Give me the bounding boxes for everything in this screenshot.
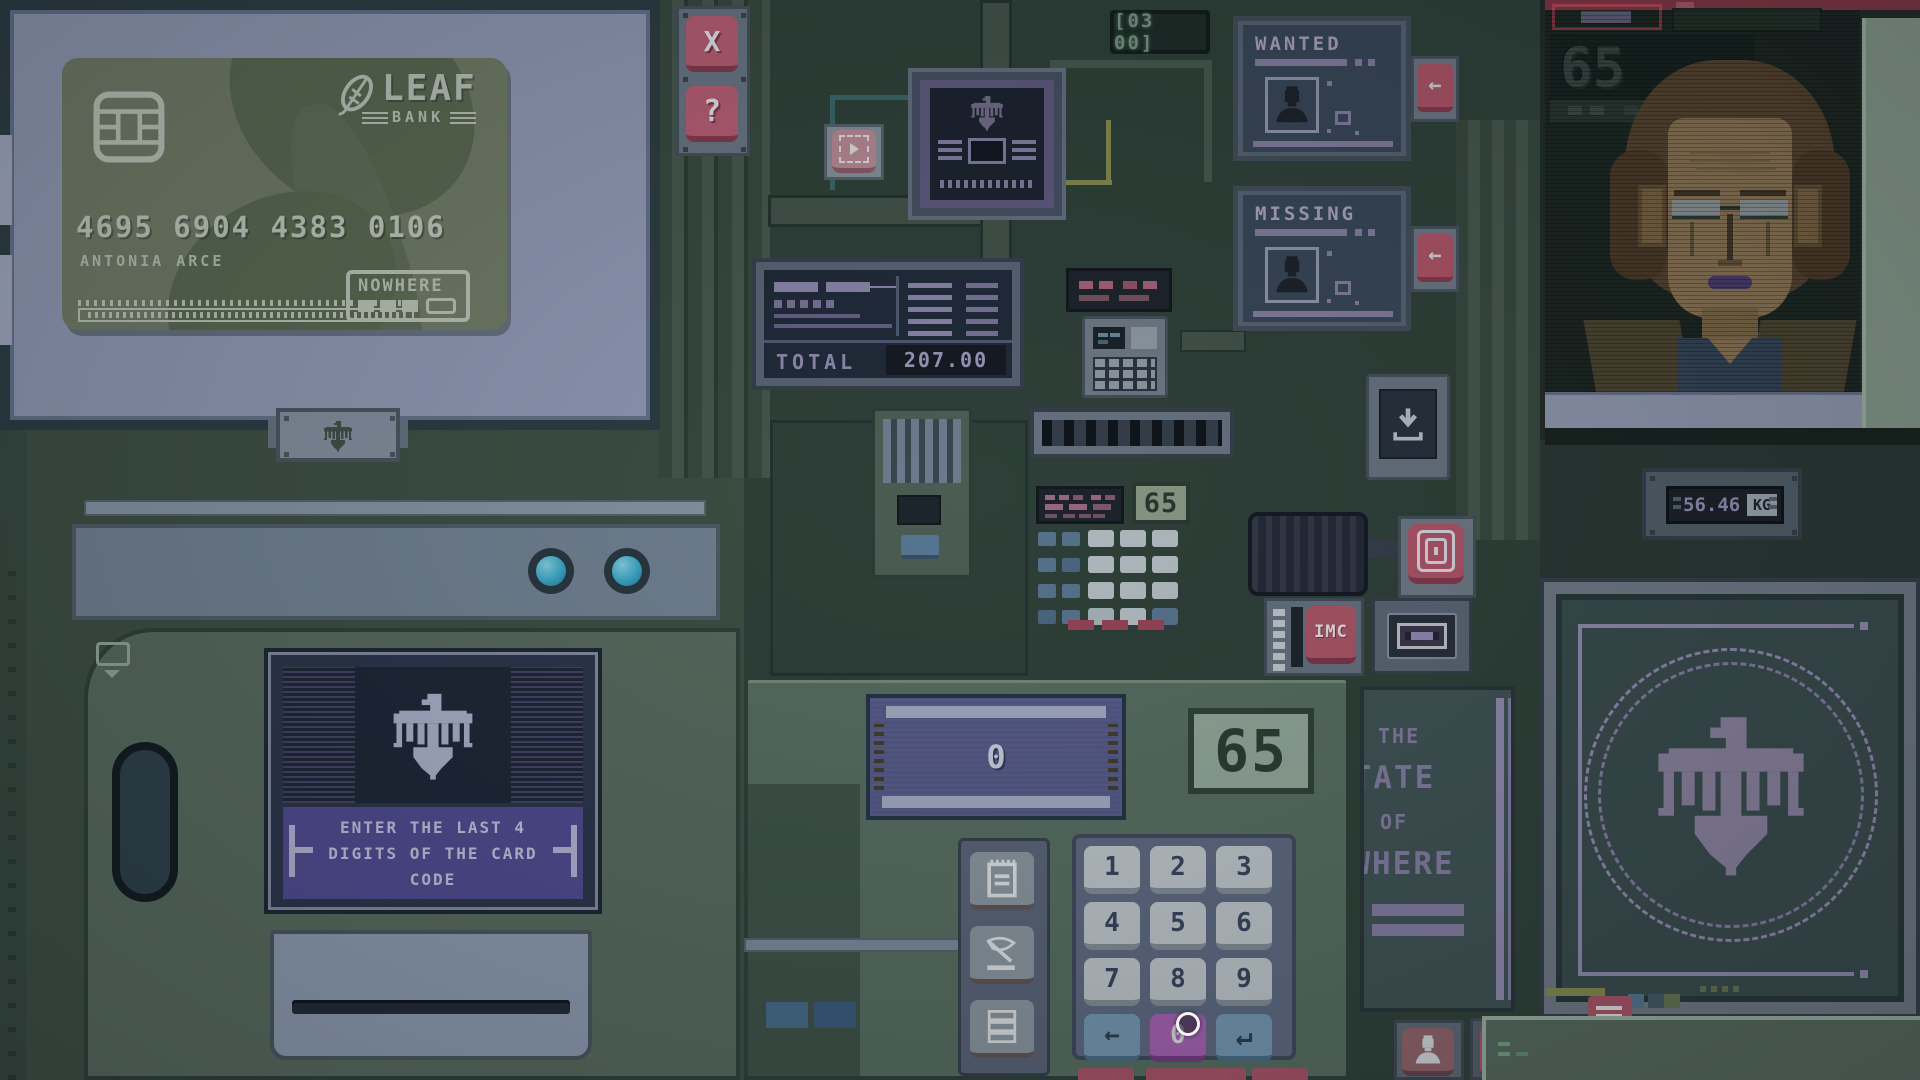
emblem-bracket-dot [1860, 622, 1868, 630]
calc-lcd-value: 65 [1144, 488, 1179, 519]
key-label: 5 [1170, 908, 1186, 938]
total-value-box: 207.00 [886, 345, 1006, 375]
cable-drum [1248, 512, 1368, 596]
key-label: 3 [1236, 852, 1252, 882]
door-column [1862, 18, 1920, 442]
pipe-decor [1456, 120, 1540, 540]
sign-line: NOWHERE [1360, 846, 1494, 882]
screw [683, 13, 688, 18]
card-region-badge: NOWHERE [346, 270, 470, 322]
key-label: 7 [1104, 964, 1120, 994]
bank-card[interactable]: LEAF BANK 4695 6904 4383 0106 ANTONIA AR… [62, 58, 507, 330]
atm-prompt-line: CODE [283, 867, 583, 893]
numpad-key-7[interactable]: 7 [1084, 958, 1140, 1006]
card-region-label: NOWHERE [358, 276, 444, 296]
dial-screen-bars [1098, 333, 1108, 337]
receipt-line-bars [774, 300, 834, 308]
amount-display-botbar [882, 796, 1110, 808]
missing-dot [1327, 299, 1331, 303]
scale-plate: 56.46 KG [1642, 468, 1802, 540]
dial-aux [1131, 327, 1157, 349]
emblem-screen [1556, 594, 1904, 1002]
certificate-mat [920, 80, 1054, 208]
certificate-lines [1012, 140, 1036, 144]
sign-button[interactable] [970, 926, 1034, 984]
status-led-glow [612, 556, 642, 586]
popup-dashes [1498, 1042, 1510, 1046]
mini-pink-bars [1596, 1006, 1622, 1010]
deposit-module [1366, 374, 1450, 480]
calc-display-bars [1045, 504, 1063, 510]
missing-photo [1265, 247, 1319, 303]
port-slot-bar [1405, 632, 1439, 640]
screen-scanline-col [283, 667, 355, 803]
deposit-screen [1379, 389, 1437, 459]
machine-top-bar [84, 500, 706, 516]
port-inner [1387, 613, 1457, 659]
help-button-label: ? [703, 94, 721, 129]
day-counter-display: [03 00] [1110, 10, 1210, 54]
eject-icon [839, 135, 869, 163]
imc-button-label: IMC [1314, 622, 1348, 642]
charge-indicator [766, 1002, 808, 1028]
monitor-side-segment [0, 135, 12, 225]
total-divider [764, 340, 1012, 343]
screw [284, 416, 289, 421]
vent-blue-key[interactable] [901, 535, 939, 559]
socket-slots [1042, 420, 1222, 446]
key-label: 2 [1170, 852, 1186, 882]
eagle-plaque [276, 408, 400, 462]
window-top-pink [1676, 2, 1694, 8]
key-label: 8 [1170, 964, 1186, 994]
wanted-prev-button[interactable]: ← [1417, 64, 1453, 112]
wanted-screen: WANTED [1243, 25, 1401, 152]
machine-handle [112, 742, 178, 902]
emblem-bracket [1578, 624, 1582, 976]
certificate-seal [968, 138, 1006, 164]
sign-line: OF [1380, 810, 1494, 834]
receipt-slot[interactable] [292, 1000, 570, 1014]
pink-key-top[interactable] [1078, 1068, 1134, 1080]
missing-poster[interactable]: MISSING [1233, 186, 1411, 331]
total-monitor: TOTAL 207.00 [752, 258, 1024, 390]
person-icon [1410, 1032, 1446, 1068]
state-eagle-icon [388, 675, 478, 797]
plaque-eagle-icon [318, 420, 358, 452]
notepad-icon [980, 857, 1024, 901]
numpad-key-2[interactable]: 2 [1150, 846, 1206, 894]
sign-line: THE [1378, 724, 1494, 748]
missing-mark [1327, 251, 1332, 256]
card-number: 4695 6904 4383 0106 [76, 210, 446, 244]
missing-silhouette-icon [1269, 252, 1315, 298]
receipt-line-bars [774, 282, 818, 292]
numpad-key-5[interactable]: 5 [1150, 902, 1206, 950]
indicator-dashes [1700, 986, 1740, 992]
bank-tag-lines [450, 112, 476, 124]
atm-prompt-line: DIGITS OF THE CARD [283, 841, 583, 867]
limit-value: 65 [1214, 717, 1288, 785]
state-sign: THE STATE OF NOWHERE [1360, 686, 1515, 1012]
status-led-glow [536, 556, 566, 586]
cell-indicator-bars [1079, 295, 1109, 301]
backspace-arrow-icon: ← [1104, 1020, 1120, 1050]
scale-weight-value: 56.46 [1683, 494, 1740, 516]
close-button-label: X [704, 25, 721, 58]
certificate-screen [930, 88, 1044, 200]
pipe-decor [1204, 60, 1212, 182]
window-sill-shadow [1545, 428, 1920, 445]
certificate-eagle-icon [964, 94, 1010, 132]
cell-indicator-bars [1079, 281, 1093, 289]
status-led [528, 548, 574, 594]
pipe-decor [1050, 60, 1212, 68]
pink-key-top[interactable] [1252, 1068, 1308, 1080]
cell-indicator-panel [1066, 268, 1172, 312]
receipt-dash-rows [966, 280, 998, 336]
total-label: TOTAL [776, 350, 856, 374]
emblem-bracket [1578, 624, 1854, 628]
card-out-icon-arrow [104, 670, 120, 678]
missing-dots [1355, 229, 1362, 236]
keypad-panel-shade [748, 784, 860, 1076]
sign-bar [1372, 904, 1464, 916]
missing-title: MISSING [1255, 203, 1356, 225]
wanted-title: WANTED [1255, 33, 1342, 55]
total-value: 207.00 [904, 348, 988, 372]
eagle-certificate-frame [908, 68, 1066, 220]
amount-value-wrap: 0 [870, 722, 1122, 792]
key-label: 1 [1104, 852, 1120, 882]
day-counter-value: [03 00] [1114, 10, 1206, 54]
numpad-backspace-key[interactable]: ← [1084, 1014, 1140, 1062]
wanted-dots [1355, 59, 1362, 66]
atm-screen-emblem-zone [283, 667, 583, 803]
wanted-stamp [1335, 111, 1351, 125]
missing-underline [1255, 229, 1347, 236]
monitor-side-segment [0, 255, 12, 345]
port-slot[interactable] [1397, 623, 1447, 649]
receipt-dash-rows [908, 280, 952, 336]
amount-value: 0 [986, 738, 1005, 776]
window-sill [1545, 392, 1862, 428]
missing-footer-bar [1253, 311, 1393, 317]
vent-grille [883, 419, 961, 483]
sign-bar [1372, 924, 1464, 936]
spiral-icon [1417, 530, 1455, 572]
machine-edge-ticks [8, 560, 16, 1080]
scale-dashes [1769, 497, 1777, 501]
mouse-cursor [1176, 1012, 1200, 1036]
amount-display-topbar [882, 706, 1110, 718]
card-stack-icon [980, 1005, 1024, 1049]
calc-display-bars [1045, 514, 1057, 518]
documents-button[interactable] [970, 1000, 1034, 1058]
side-pipe [744, 938, 960, 952]
limit-display: 65 [1188, 708, 1314, 794]
badge-block [358, 300, 374, 312]
missing-prev-button[interactable]: ← [1417, 234, 1453, 282]
game-screen: LEAF BANK 4695 6904 4383 0106 ANTONIA AR… [0, 0, 1920, 1080]
wanted-underline [1255, 59, 1347, 66]
close-button[interactable]: X [686, 16, 738, 72]
vent-screen [897, 495, 941, 525]
insert-down-icon [1386, 402, 1430, 446]
total-screen: TOTAL 207.00 [764, 270, 1012, 378]
numpad-key-4[interactable]: 4 [1084, 902, 1140, 950]
scale-display: 56.46 KG [1666, 486, 1784, 524]
receipt-line-bars [774, 314, 860, 318]
customer-button[interactable] [1402, 1028, 1454, 1076]
wanted-photo [1265, 77, 1319, 133]
wanted-mark [1327, 81, 1332, 86]
pink-key-top[interactable] [1146, 1068, 1246, 1080]
screw [1650, 476, 1655, 481]
bank-tag: BANK [392, 108, 444, 126]
eject-button[interactable] [832, 130, 876, 173]
missing-stamp [1335, 281, 1351, 295]
window-glass-tint [1545, 10, 1860, 392]
atm-screen: ENTER THE LAST 4 DIGITS OF THE CARD CODE [268, 652, 598, 910]
imc-connector-pins [1273, 609, 1285, 616]
calc-display-bars [1045, 495, 1055, 500]
numpad-key-6[interactable]: 6 [1216, 902, 1272, 950]
calc-display [1036, 486, 1124, 524]
atm-prompt: ENTER THE LAST 4 DIGITS OF THE CARD CODE [283, 815, 583, 893]
numpad-key-8[interactable]: 8 [1150, 958, 1206, 1006]
imc-button[interactable]: IMC [1306, 606, 1356, 664]
dial-module [1082, 316, 1168, 398]
missing-screen: MISSING [1243, 195, 1401, 322]
status-led [604, 548, 650, 594]
quill-pen-icon [980, 931, 1024, 975]
pipe-decor [1106, 120, 1111, 185]
sign-text: THE STATE OF NOWHERE [1364, 724, 1494, 936]
state-emblem-eagle-icon [1648, 704, 1814, 886]
sign-stripe [1496, 698, 1504, 1000]
emblem-bracket [1578, 972, 1854, 976]
port-module [1372, 598, 1472, 674]
amount-display: 0 [866, 694, 1126, 820]
imc-slot [1291, 607, 1303, 667]
key-label: 4 [1104, 908, 1120, 938]
key-label: 9 [1236, 964, 1252, 994]
calc-blue-keys[interactable] [1038, 532, 1056, 546]
numpad-key-1[interactable]: 1 [1084, 846, 1140, 894]
numpad-enter-key[interactable]: ↵ [1216, 1014, 1272, 1062]
atm-prompt-line: ENTER THE LAST 4 [283, 815, 583, 841]
wanted-poster[interactable]: WANTED [1233, 16, 1411, 161]
card-out-icon [96, 642, 130, 666]
receipt-line-bars [774, 324, 892, 328]
card-chip-icon [92, 90, 166, 164]
sign-line: STATE [1360, 760, 1494, 796]
calc-lcd: 65 [1132, 482, 1190, 524]
enter-arrow-icon: ↵ [1236, 1019, 1253, 1052]
screen-scanline-col [511, 667, 583, 803]
pipe-decor [1180, 330, 1246, 352]
atm-prompt-banner: ENTER THE LAST 4 DIGITS OF THE CARD CODE [283, 807, 583, 899]
vent-module [872, 408, 972, 578]
numpad-key-9[interactable]: 9 [1216, 958, 1272, 1006]
bank-tag-lines [362, 112, 388, 124]
calc-red-keys[interactable] [1068, 620, 1094, 630]
calc-white-keys[interactable] [1088, 530, 1114, 547]
numpad-key-3[interactable]: 3 [1216, 846, 1272, 894]
spiral-button[interactable] [1408, 524, 1464, 584]
card-holder: ANTONIA ARCE [80, 252, 224, 270]
wanted-dot [1327, 129, 1331, 133]
receipt-slot-panel[interactable] [270, 930, 592, 1060]
yellow-strip [1545, 988, 1605, 996]
scale-dashes [1673, 497, 1681, 501]
register-calc: 65 [1026, 474, 1202, 630]
wanted-footer-bar [1253, 141, 1393, 147]
certificate-microtext [940, 180, 1034, 188]
machine-led-bar [72, 524, 720, 620]
notes-button[interactable] [970, 852, 1034, 910]
popup-panel [1482, 1016, 1920, 1080]
key-label: 6 [1236, 908, 1252, 938]
receipt-col-divider [896, 276, 899, 336]
bank-name: LEAF [382, 68, 477, 109]
dial-screen [1093, 327, 1125, 349]
socket-strip [1030, 408, 1234, 458]
badge-outline-block [426, 298, 456, 314]
suspect-silhouette-icon [1269, 82, 1315, 128]
help-button[interactable]: ? [686, 86, 738, 142]
certificate-lines [938, 140, 962, 144]
sign-stripe [1508, 698, 1513, 1000]
dial-grid[interactable] [1093, 357, 1157, 391]
